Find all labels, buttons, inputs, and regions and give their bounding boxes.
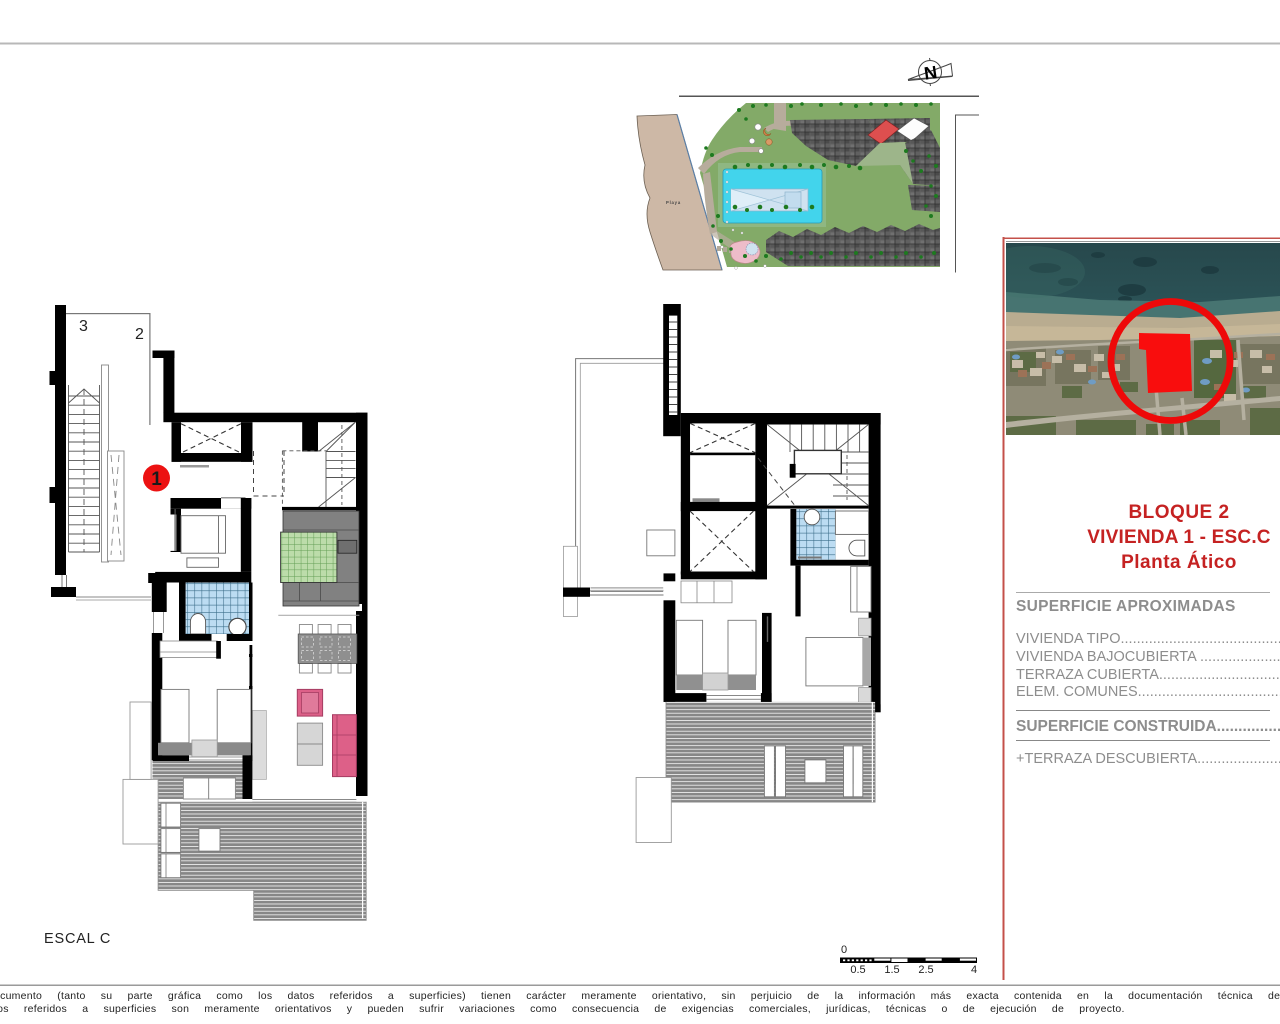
svg-text:N: N	[923, 62, 938, 83]
svg-text:1.5: 1.5	[884, 964, 899, 976]
svg-text:0.5: 0.5	[850, 964, 865, 976]
svg-text:2.5: 2.5	[918, 964, 933, 976]
svg-text:4: 4	[971, 964, 977, 976]
svg-text:0: 0	[841, 944, 847, 956]
svg-text:1: 1	[151, 469, 162, 490]
svg-text:2: 2	[135, 326, 144, 343]
svg-text:Playa: Playa	[666, 200, 681, 205]
svg-text:3: 3	[79, 318, 88, 335]
